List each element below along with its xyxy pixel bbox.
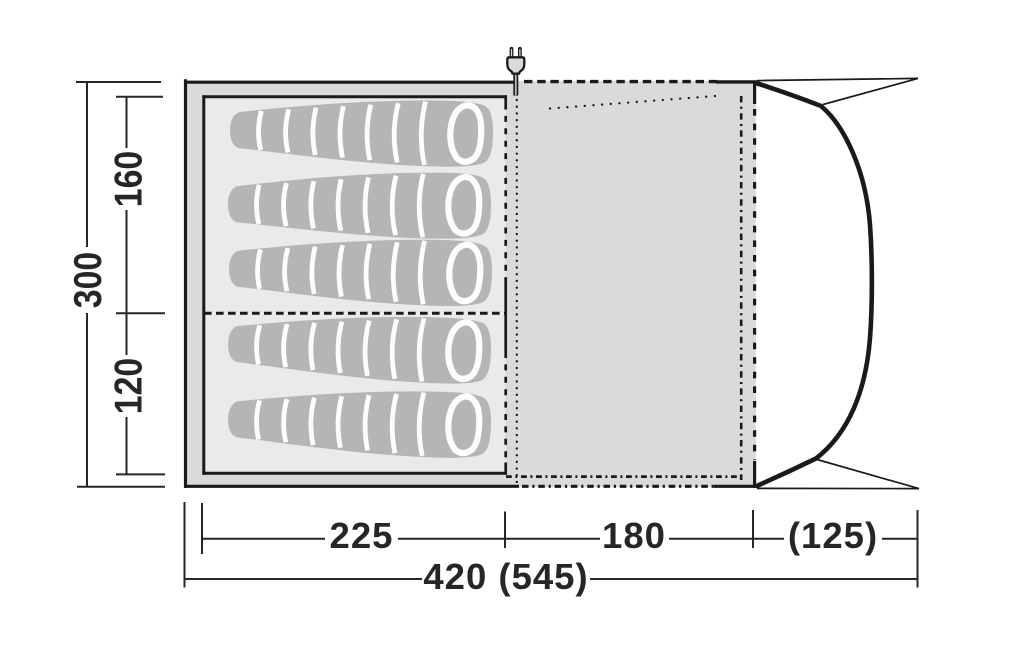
svg-text:180: 180: [602, 515, 666, 556]
svg-text:225: 225: [330, 515, 394, 556]
svg-text:420 (545): 420 (545): [423, 556, 588, 597]
svg-text:160: 160: [106, 151, 150, 207]
svg-text:300: 300: [66, 252, 110, 308]
svg-text:120: 120: [106, 358, 150, 414]
svg-text:(125): (125): [788, 515, 878, 556]
